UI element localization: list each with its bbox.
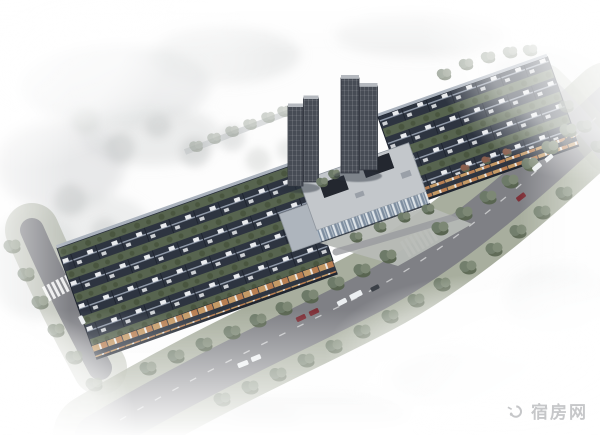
tower-group-right <box>334 75 382 182</box>
rendering-svg <box>0 0 600 435</box>
watermark-text: 宿房网 <box>531 398 588 423</box>
watermark-logo-icon <box>505 401 525 421</box>
watermark: 宿房网 <box>505 398 588 423</box>
aerial-rendering-image: 宿房网 <box>0 0 600 435</box>
